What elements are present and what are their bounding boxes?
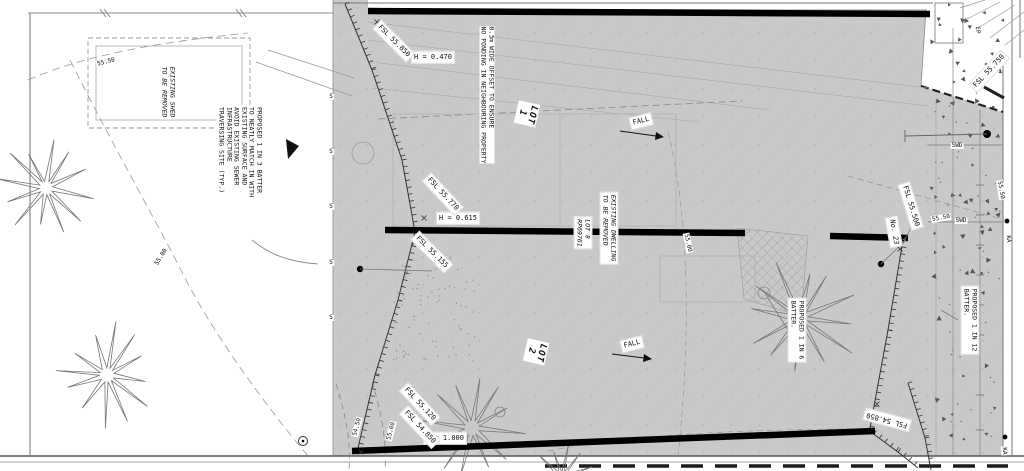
wall-height-top-label: H = 0.470 <box>411 51 455 64</box>
sewer-mark-1: S <box>328 94 334 100</box>
sewer-mark-4: S <box>328 260 334 266</box>
ka-label-lower: KA <box>1001 446 1007 456</box>
existing-dwelling-note: EXISTING DWELLING TO BE REMOVED <box>600 192 619 265</box>
swd-line-label-lower: SWD <box>955 218 968 224</box>
plan-linework <box>0 0 1024 471</box>
offset-note: 0.3m WIDE OFFSET TO ENSURE NO PONDING IN… <box>479 25 496 166</box>
existing-shed-note: EXISTING SHED TO BE REMOVED <box>160 65 177 120</box>
lot-8-label: LOT 8 RP69761 <box>574 216 593 249</box>
batter-1in12-note: PROPOSED 1 IN 12 BATTER. <box>961 286 980 355</box>
batter-1in6-note: PROPOSED 1 IN 6 BATTER. <box>788 298 807 363</box>
swd-line-label-upper: SWD <box>951 143 964 149</box>
ka-label-upper: KA <box>1005 234 1011 244</box>
wall-height-middle-label: H = 0.615 <box>436 212 480 225</box>
sewer-mark-5: S <box>328 315 334 321</box>
site-plan-canvas: H = 0.470 H = 0.615 H = 1.000 FSL 55.850… <box>0 0 1024 471</box>
sewer-mark-3: S <box>328 204 334 210</box>
batter-1in3-note: PROPOSED 1 IN 3 BATTER TO NEATLY MATCH I… <box>217 105 264 199</box>
ep-label: EP <box>974 25 981 35</box>
sewer-mark-2: S <box>328 149 334 155</box>
